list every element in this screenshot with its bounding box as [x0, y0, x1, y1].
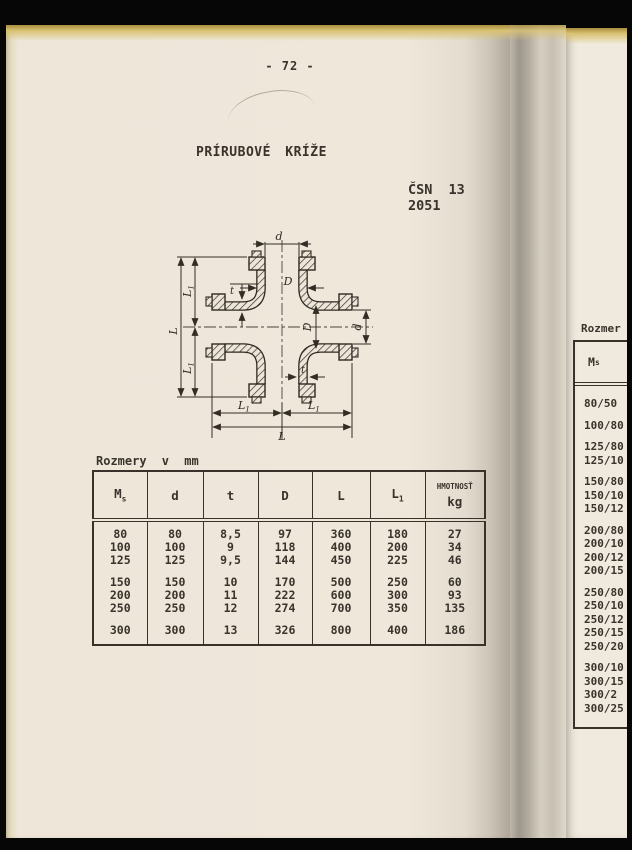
adjacent-table-fragment: Ms 80/50100/80125/80125/10150/80150/1015… [573, 340, 627, 729]
column-header: L1 [370, 471, 425, 520]
size-item: 150/10 [584, 489, 627, 503]
size-item: 250/10 [584, 599, 627, 613]
table-row: 30030013326800400186 [93, 624, 485, 645]
table-cell: 125 [93, 554, 147, 567]
size-item: 100/80 [584, 419, 627, 433]
page-top-edge [566, 28, 627, 44]
dim-label-d-top: d [275, 230, 282, 243]
table-cell: 700 [312, 602, 370, 615]
column-header: D [258, 471, 312, 520]
main-table-body: 80808,5973601802710010091184002003412512… [93, 520, 485, 645]
table-caption: Rozmery v mm [96, 454, 199, 468]
size-item: 250/15 [584, 626, 627, 640]
size-group: 80/50 [584, 397, 627, 411]
size-item: 200/12 [584, 551, 627, 565]
dim-label-L-bottom: L [277, 430, 285, 443]
column-header: t [203, 471, 258, 520]
dim-label-L1-bottom-right: L1 [307, 399, 320, 414]
size-group: 200/80200/10200/12200/15 [584, 524, 627, 578]
table-cell: 13 [203, 624, 258, 645]
dim-label-d-right: d [351, 323, 364, 330]
dimensions-table: MsdtDLL1HMOTNOSŤkg 80808,597360180271001… [92, 470, 486, 646]
column-header: d [147, 471, 203, 520]
dim-label-D-top: D [283, 275, 293, 288]
size-item: 250/20 [584, 640, 627, 654]
size-group: 250/80250/10250/12250/15250/20 [584, 586, 627, 654]
table-cell: 9,5 [203, 554, 258, 567]
table-cell: 180 [370, 520, 425, 541]
dim-label-L1-upper: L1 [181, 285, 196, 298]
page-top-edge [510, 25, 566, 41]
dim-label-D-center: D [301, 322, 314, 332]
size-item: 300/15 [584, 675, 627, 689]
main-table-header-row: MsdtDLL1HMOTNOSŤkg [93, 471, 485, 520]
table-cell: 135 [425, 602, 485, 615]
size-item: 200/10 [584, 537, 627, 551]
size-item: 150/12 [584, 502, 627, 516]
size-item: 125/80 [584, 440, 627, 454]
dim-label-t-upper: t [230, 286, 235, 297]
table-cell: 326 [258, 624, 312, 645]
table-cell: 8,5 [203, 520, 258, 541]
table-row: 1251259,514445022546 [93, 554, 485, 567]
book-gutter-shadow [510, 25, 566, 838]
column-header: L [312, 471, 370, 520]
size-group: 125/80125/10 [584, 440, 627, 467]
adjacent-size-list: 80/50100/80125/80125/10150/80150/10150/1… [575, 386, 627, 727]
table-cell: 27 [425, 520, 485, 541]
size-item: 200/80 [584, 524, 627, 538]
table-cell: 144 [258, 554, 312, 567]
faint-pen-stroke [225, 84, 320, 146]
table-cell: 300 [93, 624, 147, 645]
scanned-book-photo: - 72 - PRÍRUBOVÉ KRÍŽE ČSN 13 2051 [0, 0, 632, 850]
table-cell: 274 [258, 602, 312, 615]
page-number: - 72 - [258, 59, 322, 73]
dim-label-L1-bottom-left: L1 [237, 399, 250, 414]
column-header: Ms [93, 471, 147, 520]
page-top-edge [6, 25, 510, 41]
size-item: 300/10 [584, 661, 627, 675]
page-title: PRÍRUBOVÉ KRÍŽE [196, 145, 327, 160]
standard-code: ČSN 13 2051 [408, 182, 510, 214]
size-item: 150/80 [584, 475, 627, 489]
table-cell: 250 [147, 602, 203, 615]
adjacent-table-caption: Rozmer [581, 322, 621, 335]
size-item: 200/15 [584, 564, 627, 578]
size-item: 250/80 [584, 586, 627, 600]
table-cell: 80 [147, 520, 203, 541]
table-cell: 46 [425, 554, 485, 567]
dimensions-table-head: MsdtDLL1HMOTNOSŤkg [93, 471, 485, 520]
table-row: 80808,59736018027 [93, 520, 485, 541]
table-cell: 800 [312, 624, 370, 645]
table-cell: 450 [312, 554, 370, 567]
size-group: 150/80150/10150/12 [584, 475, 627, 516]
column-header: HMOTNOSŤkg [425, 471, 485, 520]
size-item: 250/12 [584, 613, 627, 627]
table-cell: 80 [93, 520, 147, 541]
flanged-cross-drawing: d D L L1 L1 L1 L1 L D d t t [166, 227, 413, 451]
size-item: 125/10 [584, 454, 627, 468]
size-item: 80/50 [584, 397, 627, 411]
table-row: 25025012274700350135 [93, 602, 485, 615]
size-item: 300/25 [584, 702, 627, 716]
table-cell: 360 [312, 520, 370, 541]
size-group: 100/80 [584, 419, 627, 433]
table-cell: 350 [370, 602, 425, 615]
table-cell: 97 [258, 520, 312, 541]
table-cell: 125 [147, 554, 203, 567]
dimension-lines [177, 242, 371, 438]
size-group: 300/10300/15300/2300/25 [584, 661, 627, 715]
table-cell: 186 [425, 624, 485, 645]
size-item: 300/2 [584, 688, 627, 702]
adjacent-page: Rozmer Ms 80/50100/80125/80125/10150/801… [566, 28, 627, 838]
adjacent-column-header: Ms [575, 342, 627, 386]
dim-label-L-left: L [167, 327, 180, 335]
table-cell: 300 [147, 624, 203, 645]
main-page: - 72 - PRÍRUBOVÉ KRÍŽE ČSN 13 2051 [6, 25, 510, 838]
table-cell: 250 [93, 602, 147, 615]
table-cell: 400 [370, 624, 425, 645]
table-cell: 225 [370, 554, 425, 567]
dim-label-L1-lower: L1 [181, 362, 196, 375]
table-cell: 12 [203, 602, 258, 615]
